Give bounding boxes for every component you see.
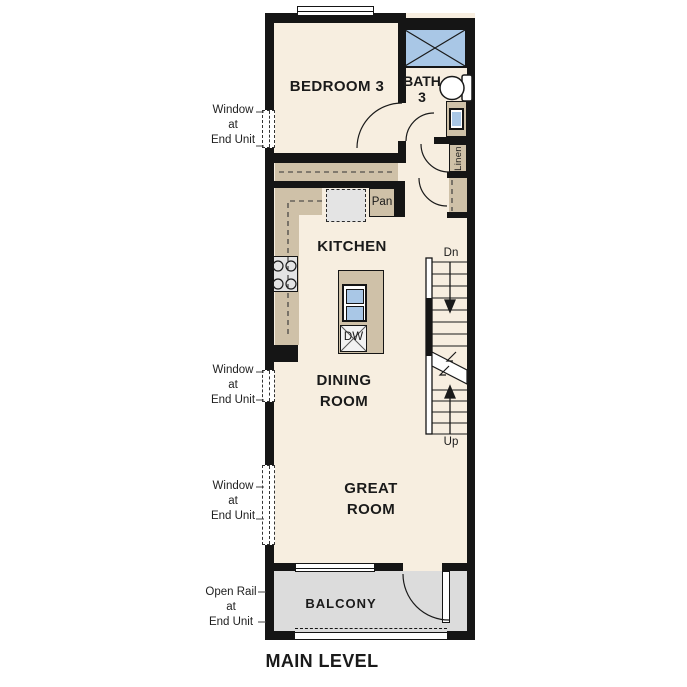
landing-closet — [449, 178, 467, 212]
annotation-window-bottom: Window at End Unit — [204, 479, 262, 524]
balcony-open-rail-dashes — [295, 628, 447, 629]
bedroom-top-window — [297, 6, 374, 16]
kitchen-label: KITCHEN — [292, 236, 412, 257]
end-unit-window-top — [262, 110, 275, 148]
wall-segment — [467, 18, 475, 640]
annotation-open-rail: Open Rail at End Unit — [200, 585, 262, 630]
wall-segment — [442, 563, 475, 571]
annotation-window-top: Window at End Unit — [204, 103, 262, 148]
dining-room-label: DINING ROOM — [294, 370, 394, 412]
vanity-sink-basin — [452, 112, 461, 126]
wall-segment — [265, 631, 295, 640]
stairs-down-label: Dn — [437, 247, 465, 260]
great-room-window — [295, 563, 375, 572]
plan-title: MAIN LEVEL — [242, 651, 402, 672]
wall-segment — [265, 13, 274, 640]
bath3-label: BATH 3 — [399, 73, 445, 105]
end-unit-window-bottom — [262, 465, 275, 545]
annotation-window-mid: Window at End Unit — [204, 363, 262, 408]
bedroom3-label: BEDROOM 3 — [262, 76, 412, 97]
island-sink-basin-1 — [346, 289, 364, 304]
balcony-door-leaf — [442, 571, 450, 623]
stairs-up-label: Up — [437, 436, 465, 449]
end-unit-window-mid — [262, 370, 275, 402]
island-sink-basin-2 — [346, 306, 364, 321]
shower — [403, 28, 467, 68]
wall-segment — [395, 181, 405, 217]
balcony-label: BALCONY — [291, 596, 391, 611]
bedroom-closet — [275, 163, 398, 181]
wall-segment — [265, 345, 298, 362]
wall-segment — [447, 631, 475, 640]
wall-segment — [375, 563, 403, 571]
great-room-label: GREAT ROOM — [321, 478, 421, 520]
floor-plan: BEDROOM 3 BATH 3 KITCHEN DINING ROOM GRE… — [0, 0, 687, 687]
linen-label: Linen — [444, 144, 472, 172]
wall-segment — [265, 181, 405, 188]
wall-segment — [265, 153, 406, 163]
wall-segment — [447, 212, 475, 218]
refrigerator — [326, 189, 366, 222]
balcony-open-rail — [295, 632, 447, 640]
wall-segment — [447, 172, 475, 178]
dishwasher-label: DW — [340, 331, 367, 344]
cooktop — [270, 256, 298, 292]
wall-segment — [398, 18, 475, 28]
wall-segment — [434, 137, 475, 144]
wall-segment — [265, 563, 295, 571]
pantry-label: Pan — [369, 196, 395, 209]
